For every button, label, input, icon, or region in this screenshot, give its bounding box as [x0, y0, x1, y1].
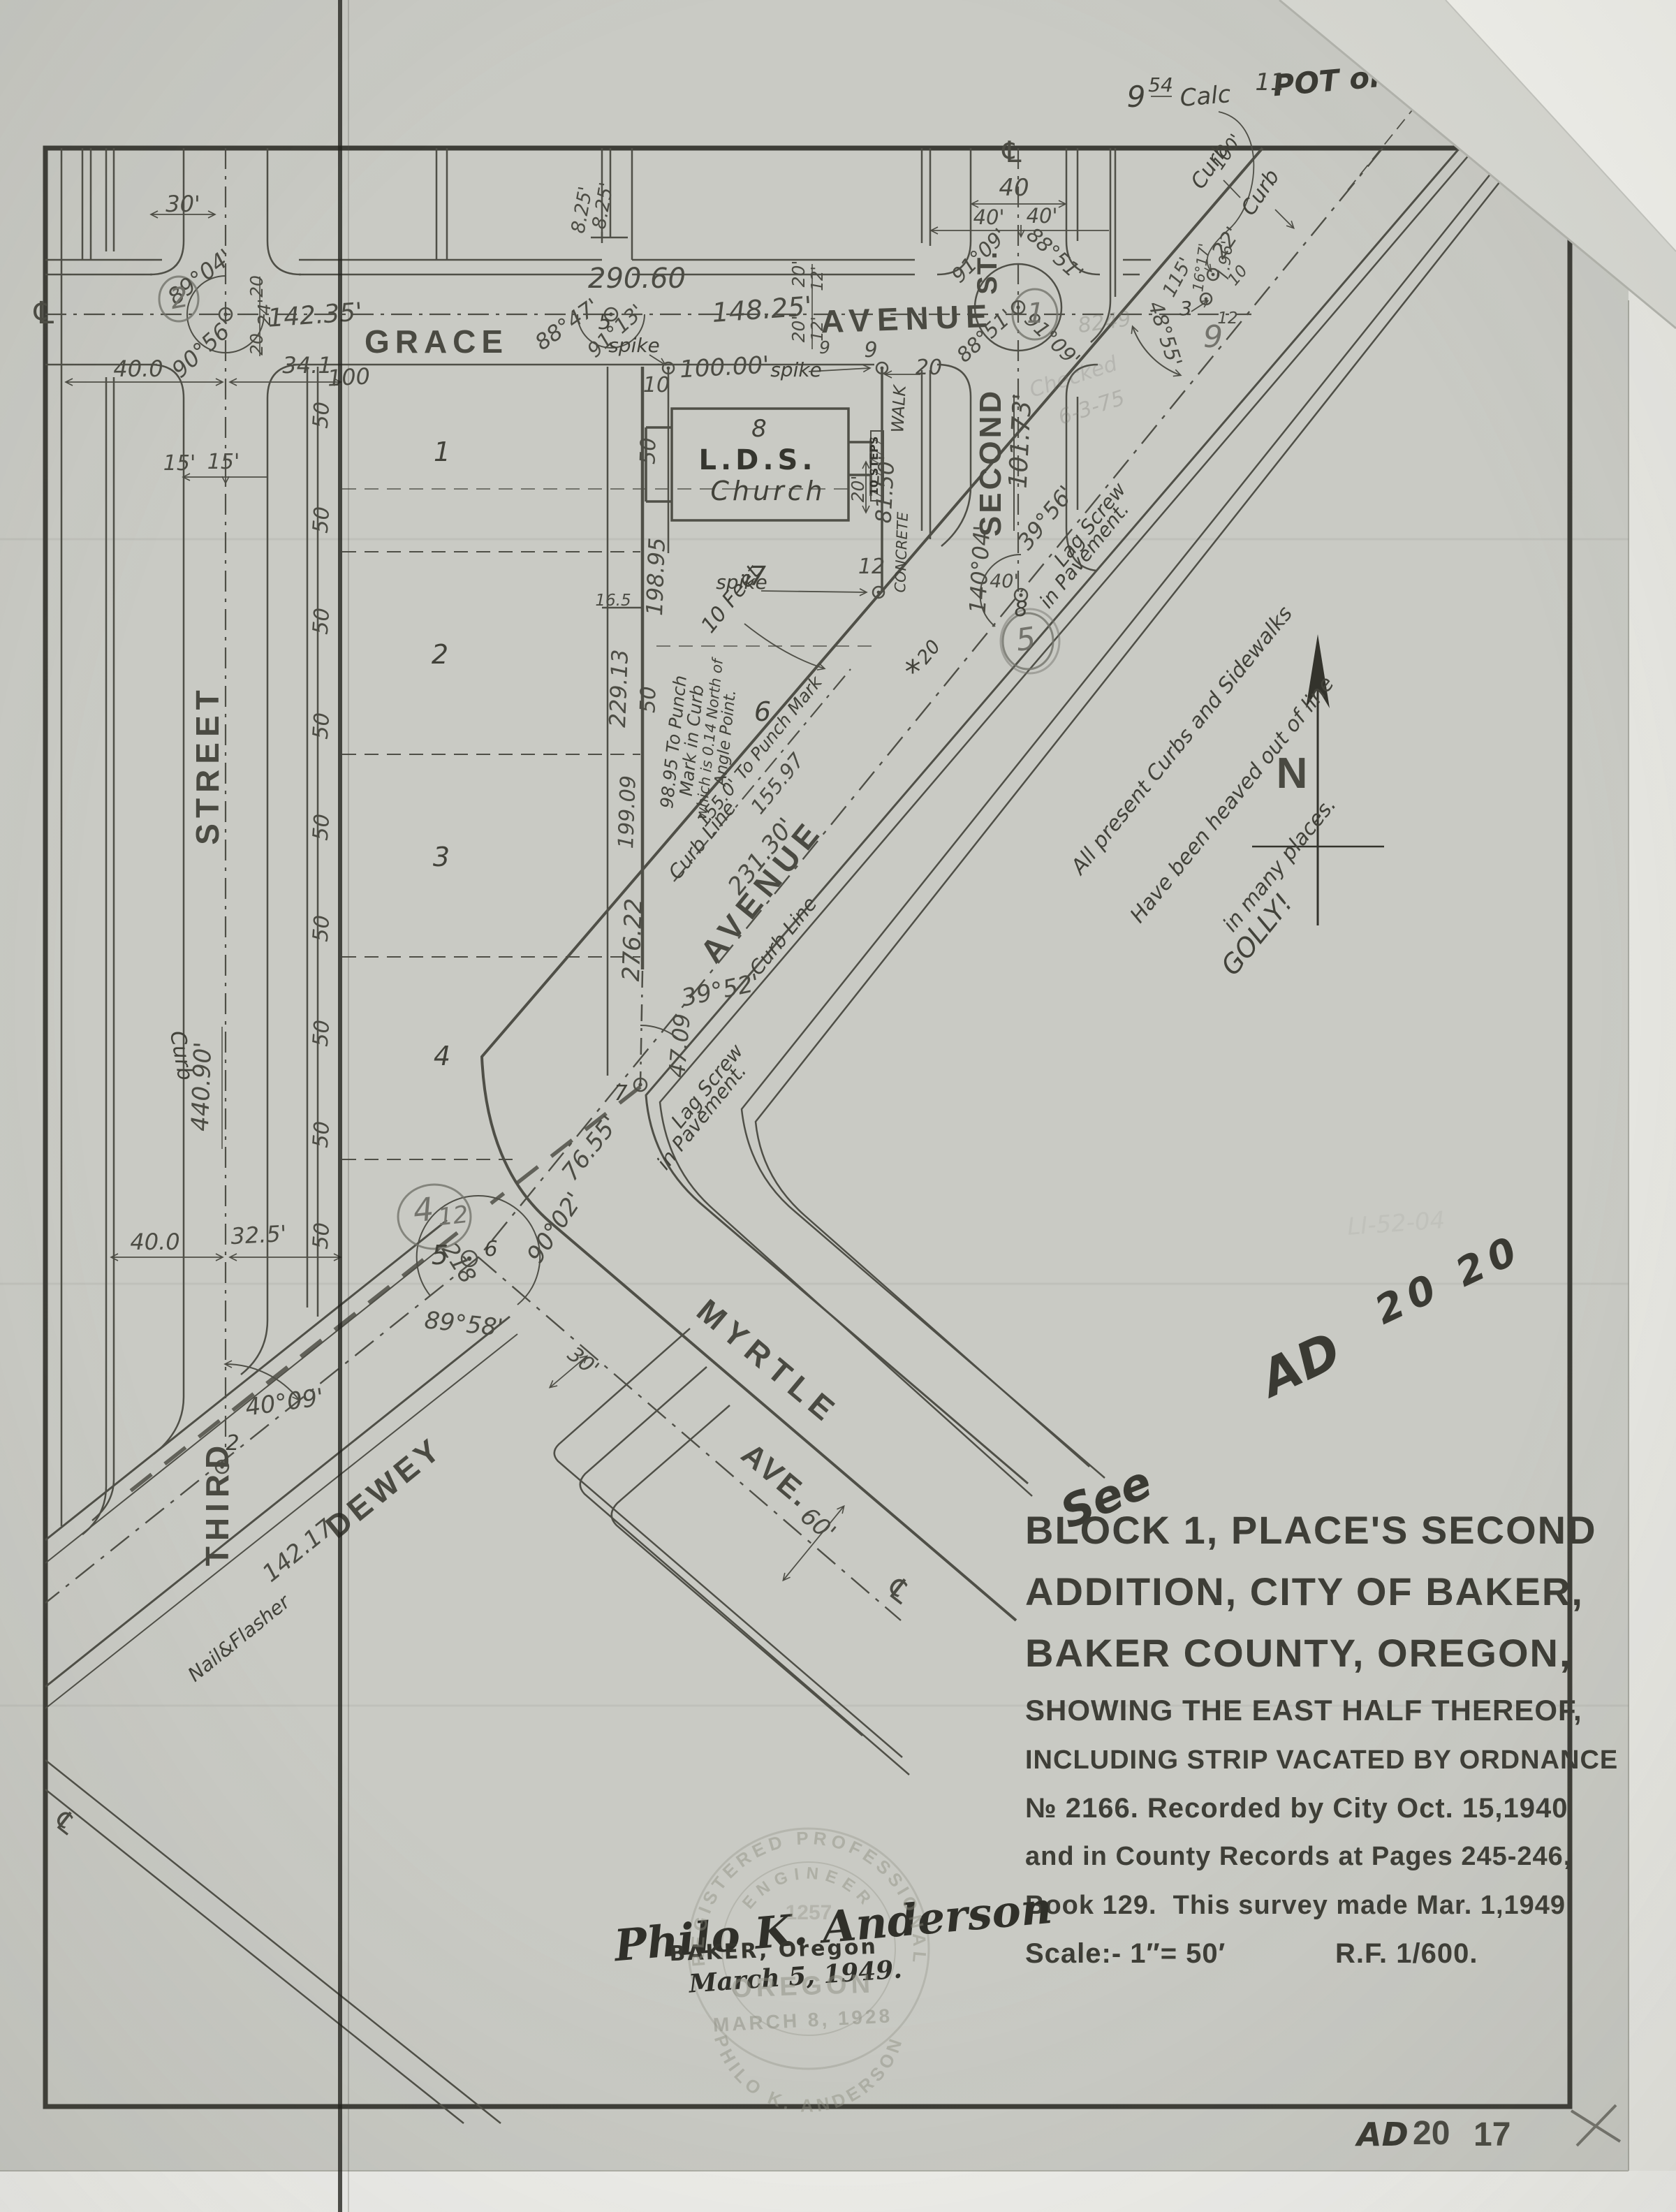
dim-50-7: 50 [309, 1019, 335, 1048]
dim-198-95: 198.95 [641, 537, 670, 616]
footer-ad: AD [1355, 2116, 1409, 2153]
title-line-3: BAKER COUNTY, OREGON, [1025, 1631, 1572, 1675]
title-line-5: INCLUDING STRIP VACATED BY ORDNANCE [1025, 1745, 1618, 1775]
dim-100-00: 100.00' [679, 351, 770, 384]
survey-map-canvas: GRACEAVENUESTREETTHIRDSECONDST.AVENUEDEW… [0, 0, 1676, 2212]
cl-second: ℄ [1002, 135, 1022, 169]
lot-3: 3 [433, 842, 450, 872]
dim-101-73: 101.73' [1004, 393, 1037, 489]
paper-bottom-edge [0, 2171, 1676, 2212]
pt-label-7: 7 [614, 1081, 627, 1106]
pt-label-5: 5 [598, 310, 611, 335]
lot-8: 8 [751, 415, 767, 443]
pt-label-2: 2 [226, 1431, 239, 1456]
title-line-2: ADDITION, CITY OF BAKER, [1025, 1569, 1584, 1613]
title-line-4: SHOWING THE EAST HALF THEREOF, [1025, 1694, 1582, 1727]
lot-5: 5 [432, 1240, 448, 1270]
title-line-8: Book 129. This survey made Mar. 1,1949. [1025, 1891, 1574, 1920]
ang-140-04: 140°04' [964, 525, 996, 614]
dim-50-1: 50 [309, 401, 335, 430]
dim-24: 24' [254, 299, 274, 326]
dim-15-left: 15' [163, 451, 196, 476]
stamp-number: 1257 [786, 1901, 832, 1924]
pencil-circled-4: 4 [411, 1190, 436, 1230]
lot-1: 1 [434, 437, 450, 467]
dim-40-e: 40' [1027, 204, 1058, 228]
dim-50-strip-a: 50 [635, 437, 661, 464]
dim-20-d: 20' [788, 316, 809, 343]
pt-label-9-big: 9 [1203, 319, 1223, 355]
dim-40-second: 40 [999, 174, 1029, 202]
scanned-survey-plat: GRACEAVENUESTREETTHIRDSECONDST.AVENUEDEW… [0, 0, 1676, 2212]
lot-2: 2 [432, 639, 448, 670]
bldg-church: Church [710, 476, 825, 506]
street-third-street: STREET [189, 684, 226, 844]
dim-229-13: 229.13 [604, 649, 633, 728]
pt-label-10: 10 [643, 373, 670, 397]
dim-34-1: 34.1 [282, 352, 332, 379]
dim-20-vert: 20' [848, 476, 868, 503]
note-9calc-54: 54 [1148, 73, 1173, 96]
dim-20-a: 20 [247, 275, 267, 298]
dim-20-c: 20' [788, 261, 809, 288]
dim-20-lot8: 20 [916, 356, 942, 380]
dim-20-b: 20 [247, 333, 267, 356]
footer-17: 17 [1473, 2116, 1510, 2153]
dim-16-5: 16.5 [595, 592, 631, 610]
lot-4: 4 [434, 1041, 450, 1071]
dim-15-right: 15' [207, 450, 240, 474]
dim-40-0-bottom: 40.0 [130, 1229, 179, 1255]
stamp-oregon: OREGON [730, 1969, 874, 2003]
dim-290-60: 290.60 [588, 263, 686, 295]
compass-n: N [1277, 749, 1308, 798]
pt-label-8: 8 [1014, 597, 1027, 622]
dim-50-8: 50 [309, 1120, 335, 1149]
dim-50-9: 50 [309, 1222, 335, 1250]
title-scale: Scale:- 1″= 50′ [1025, 1938, 1226, 1969]
paper-right-edge [1629, 0, 1676, 2212]
dim-199-09: 199.09 [614, 775, 641, 849]
note-spike-1: spike [608, 334, 660, 357]
pt-label-9: 9 [864, 338, 877, 362]
street-third: THIRD [199, 1440, 235, 1567]
pt-label-11: 11 [1255, 68, 1285, 96]
note-10-steps: 10 STEPS [867, 437, 881, 495]
pt-label-12: 12 [858, 555, 885, 579]
pt-label-3: 3 [1179, 297, 1192, 320]
note-9calc-calc: Calc [1179, 80, 1232, 112]
dim-40-0-top: 40.0 [113, 356, 163, 382]
dim-50-5: 50 [309, 813, 335, 842]
dim-50-4: 50 [309, 712, 335, 740]
footer-20: 20 [1413, 2115, 1450, 2152]
dim-32-5: 32.5' [230, 1220, 287, 1250]
note-spike-2: spike [770, 358, 822, 381]
dim-276-22: 276.22 [617, 898, 648, 981]
dim-30-top: 30' [166, 191, 200, 217]
pencil-circled-1: 1 [1027, 298, 1044, 330]
title-line-1: BLOCK 1, PLACE'S SECOND [1025, 1508, 1597, 1552]
dim-50-6: 50 [309, 914, 335, 943]
dim-40-w: 40' [973, 205, 1005, 229]
lot-6: 6 [754, 696, 771, 727]
pt-label-9-small: 9 [819, 337, 830, 358]
pt-label-6: 6 [484, 1237, 497, 1261]
cl-grace: ℄ [34, 295, 54, 331]
dim-50-2: 50 [309, 506, 335, 534]
dim-40-pt8: 40' [990, 571, 1019, 592]
bldg-lds: L.D.S. [698, 444, 816, 476]
dim-47-09: 47.09 [663, 1013, 696, 1079]
street-grace: GRACE [365, 323, 508, 360]
street-second: SECOND [973, 388, 1008, 536]
title-line-7: and in County Records at Pages 245-246, [1025, 1842, 1571, 1871]
dim-50-3: 50 [309, 607, 335, 636]
street-grace-avenue: AVENUE [820, 298, 994, 340]
dim-12-a: 12' [809, 266, 827, 291]
title-rf: R.F. 1/600. [1335, 1938, 1478, 1969]
note-concrete: CONCRETE [892, 511, 911, 593]
title-line-6: № 2166. Recorded by City Oct. 15,1940 [1025, 1793, 1568, 1824]
note-9calc-9: 9 [1127, 80, 1146, 114]
dim-50-strip-b: 50 [635, 686, 661, 713]
pencil-12: 12 [436, 1201, 469, 1231]
note-walk: WALK [888, 383, 910, 434]
